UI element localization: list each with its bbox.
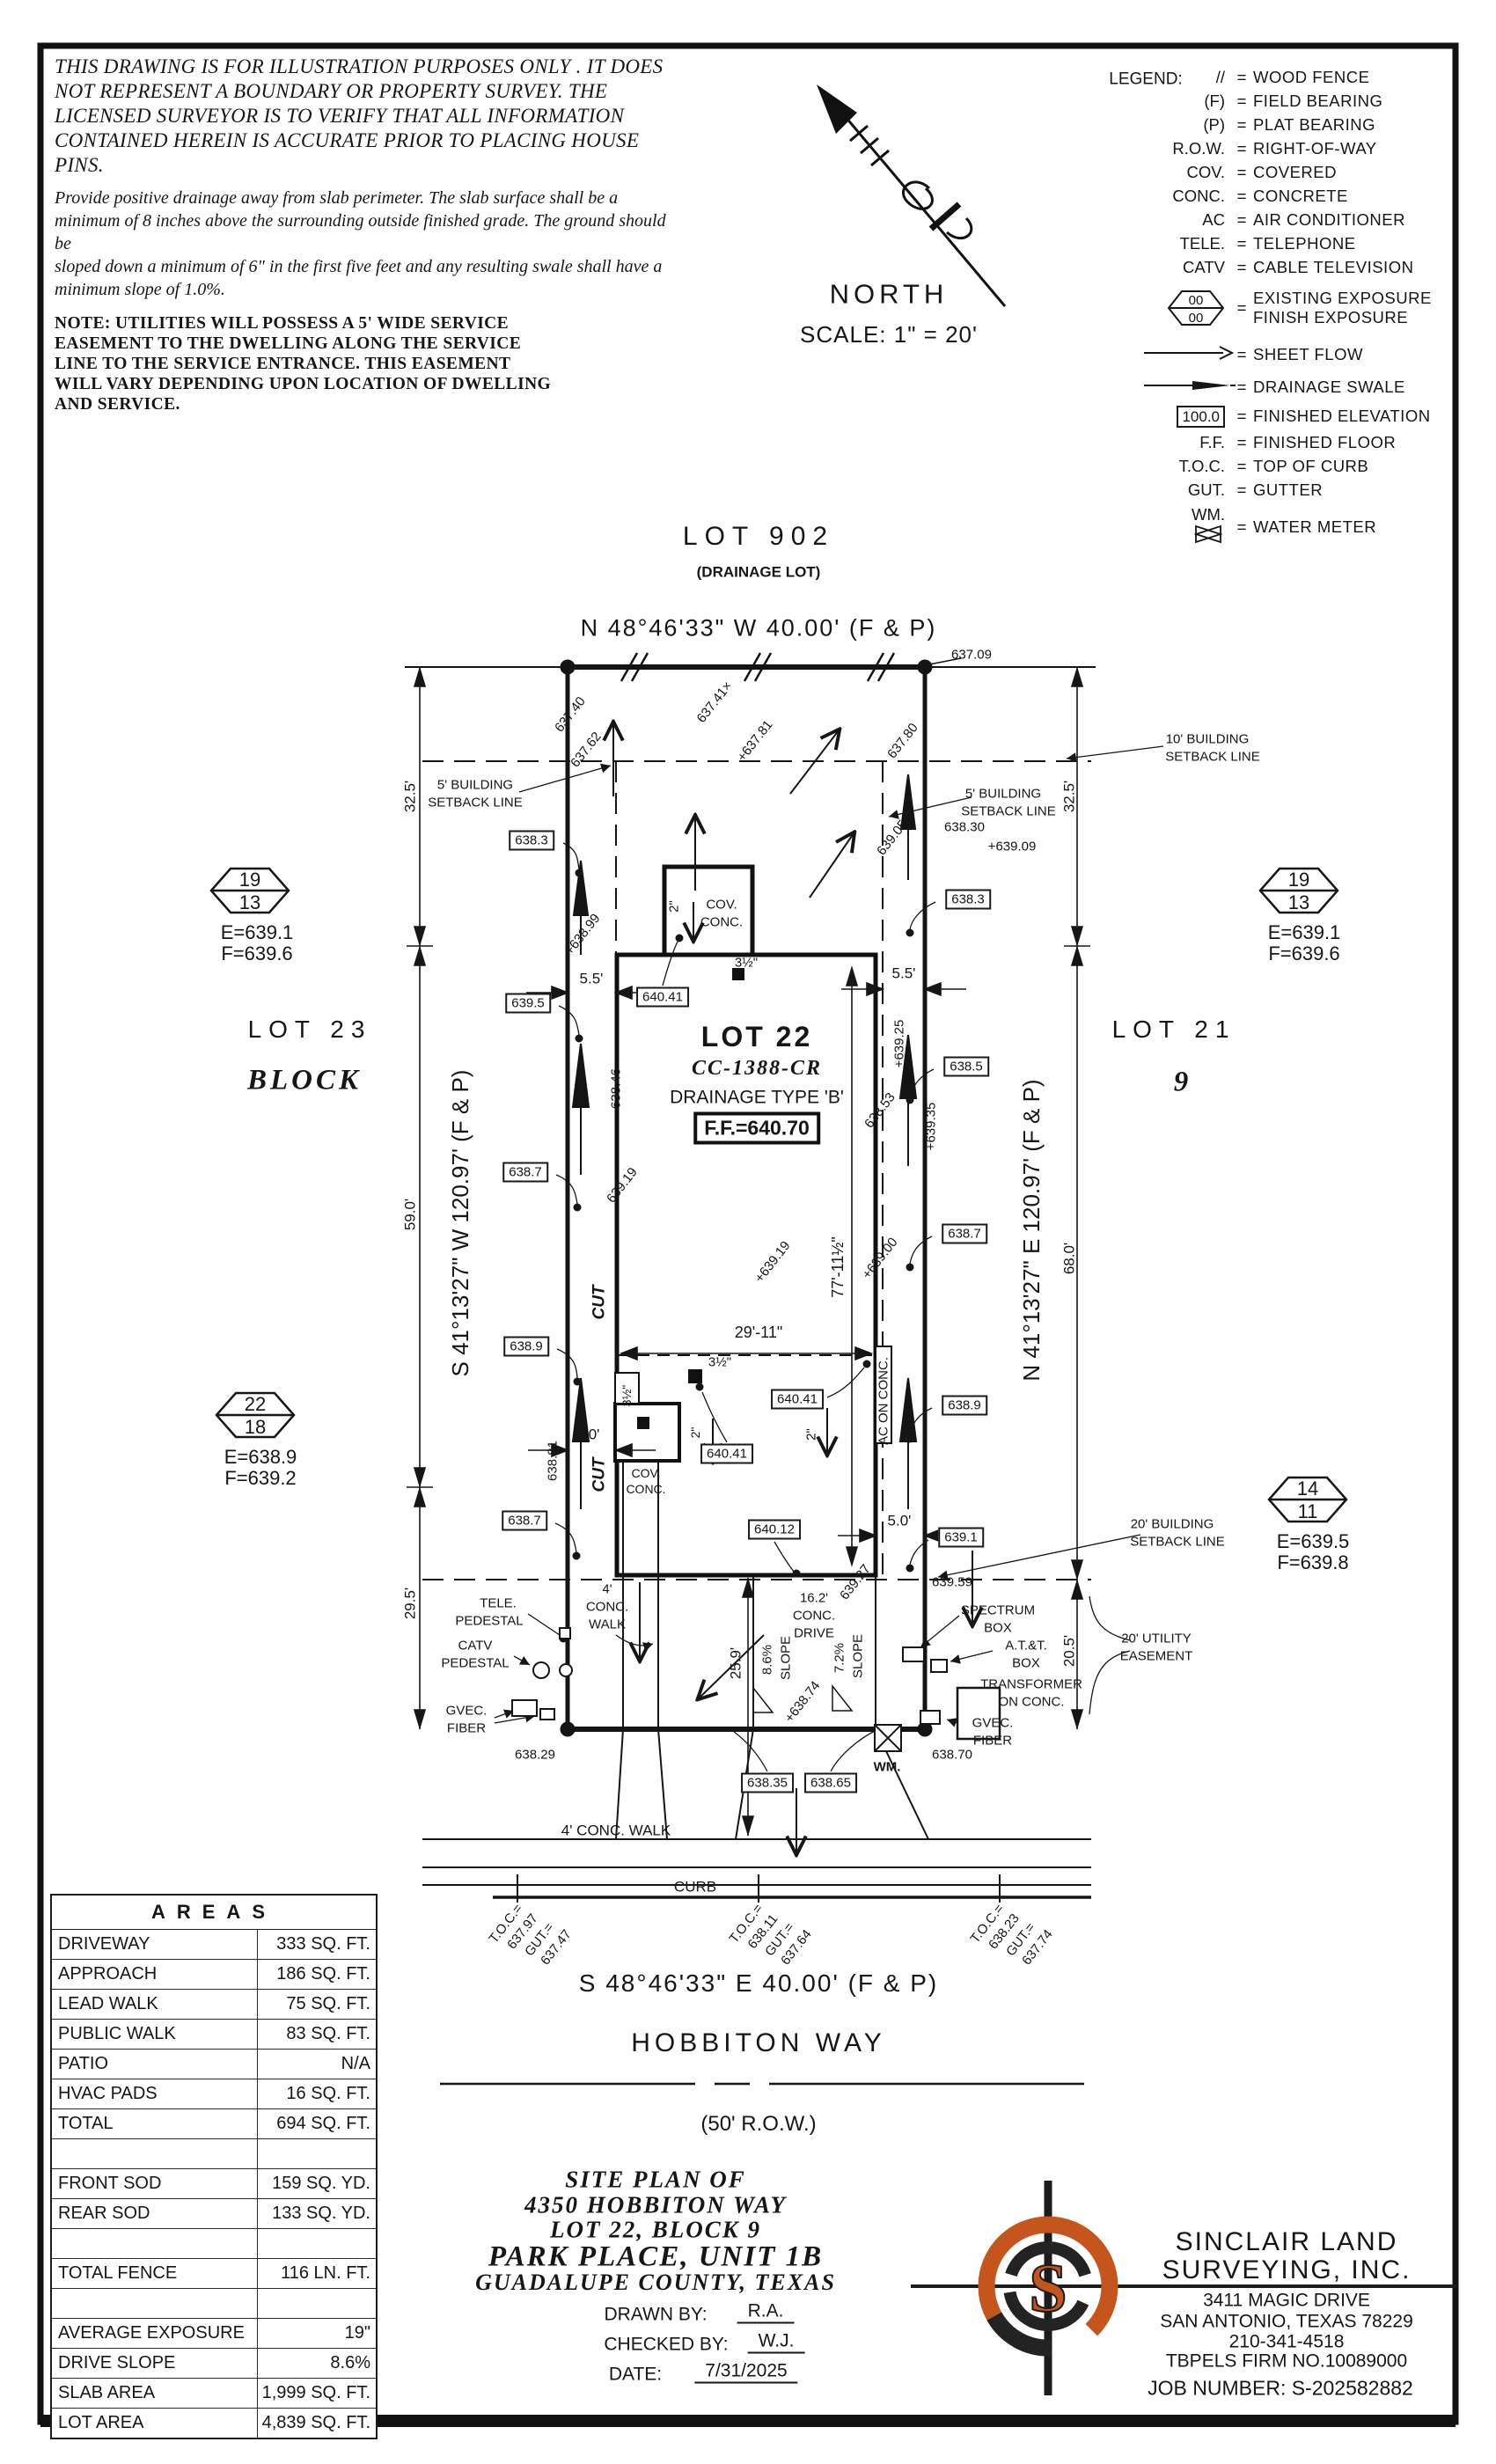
legend-item: =DRAINAGE SWALE [1144,372,1457,402]
legend-item: TELE.=TELEPHONE [1144,231,1457,255]
elev-box-640-41a: 640.41 [636,987,689,1008]
elev-638-29: 638.29 [515,1749,555,1762]
public-walk: 4' CONC. WALK [561,1823,671,1838]
lot-23: LOT 23 [248,1017,372,1042]
areas-row-value: N/A [257,2050,376,2079]
scale-label: SCALE: 1" = 20' [800,323,978,346]
areas-table-title: AREAS [52,1896,376,1930]
exposure-hex-right-top: 1913 [1258,866,1339,915]
areas-row [52,2139,376,2169]
areas-row: TOTAL FENCE116 LN. FT. [52,2259,376,2289]
legend-item: T.O.C.=TOP OF CURB [1144,454,1457,478]
dim-5-left: 5.0' [576,1427,600,1442]
transformer-2: ON CONC. [999,1696,1065,1709]
curb: CURB [674,1880,716,1895]
setback-10-line2: SETBACK LINE [1165,751,1260,764]
dim-29-5: 29.5' [403,1588,418,1619]
disclaimer-line: LICENSED SURVEYOR IS TO VERIFY THAT ALL … [55,104,671,128]
bearing-south: S 48°46'33" E 40.00' (F & P) [579,1971,938,1996]
areas-row-value: 4,839 SQ. FT. [257,2409,376,2438]
ef-right-top-e: E=639.1 [1268,923,1341,942]
checked-by-label: CHECKED BY: [604,2336,728,2354]
areas-row-label: TOTAL [52,2109,257,2138]
firm-name-1: SINCLAIR LAND [1176,2229,1398,2255]
plat-ref: CC-1388-CR [692,1058,822,1079]
elev-box-r2: 638.5 [943,1057,989,1077]
dim-2in-b: 2" [689,1427,701,1439]
setback-5-left-line2: SETBACK LINE [428,796,523,810]
firm-name-2: SURVEYING, INC. [1162,2257,1412,2284]
water-meter-icon [1194,524,1222,544]
tele-pedestal-1: TELE. [480,1597,517,1610]
cov-conc-top-2: CONC. [700,916,743,929]
legend-item: WM.=WATER METER [1144,502,1457,553]
utility-note-line: WILL VARY DEPENDING UPON LOCATION OF DWE… [55,374,671,394]
att-box-2: BOX [1012,1657,1040,1670]
drawn-by-label: DRAWN BY: [604,2306,707,2324]
spot-639-25: +639.25 [893,1020,906,1068]
slope-86-1: 8.6% [761,1645,774,1675]
ef-left-top-f: F=639.6 [221,944,292,964]
elev-box-l2: 639.5 [505,994,551,1014]
drive-dim-1: 16.2' [800,1592,828,1605]
legend-item: AC=AIR CONDITIONER [1144,208,1457,231]
areas-row-value: 16 SQ. FT. [257,2079,376,2108]
ef-left-top-e: E=639.1 [221,923,294,942]
spot-638-46: 638.46 [610,1068,623,1109]
utility-note-line: EASEMENT TO THE DWELLING ALONG THE SERVI… [55,334,671,354]
areas-row-value: 19" [257,2319,376,2348]
bearing-north: N 48°46'33" W 40.00' (F & P) [581,617,937,641]
gvec-right-1: GVEC. [972,1717,1014,1730]
areas-row-label: APPROACH [52,1960,257,1989]
svg-text:14: 14 [1297,1478,1318,1500]
areas-row-label [52,2289,257,2318]
drainage-note-line: Provide positive drainage away from slab… [55,187,671,209]
areas-row: REAR SOD133 SQ. YD. [52,2199,376,2229]
tele-pedestal-2: PEDESTAL [455,1615,523,1628]
setback-20-1: 20' BUILDING [1131,1518,1214,1531]
drainage-type: DRAINAGE TYPE 'B' [670,1089,844,1107]
ef-left-bottom-f: F=639.2 [224,1469,296,1488]
spot-639-35: +639.35 [925,1103,938,1151]
areas-row: PUBLIC WALK83 SQ. FT. [52,2020,376,2050]
elev-box-r5: 639.1 [938,1528,984,1548]
dim-5half-right: 5.5' [892,966,916,981]
areas-row-value [257,2229,376,2258]
finished-elevation-icon: 100.0 [1177,406,1225,428]
drainage-note-line: minimum slope of 1.0%. [55,278,671,301]
dim-32-5-right: 32.5' [1062,781,1077,812]
job-number: JOB NUMBER: S-202582882 [1148,2379,1413,2399]
elev-637-09: 637.09 [951,649,992,662]
north-arrow-icon [817,84,1005,306]
areas-row-value [257,2289,376,2318]
areas-row-value: 333 SQ. FT. [257,1930,376,1959]
gvec-left-2: FIBER [447,1722,486,1735]
catv-pedestal-1: CATV [458,1639,493,1653]
easement-1: 20' UTILITY [1121,1632,1192,1646]
cov-conc-bot-2: CONC. [626,1483,665,1495]
firm-phone: 210-341-4518 [1229,2333,1345,2351]
areas-row: APPROACH186 SQ. FT. [52,1960,376,1990]
elev-box-l5: 638.7 [502,1511,547,1531]
date-value: 7/31/2025 [694,2362,797,2384]
areas-row-label: LEAD WALK [52,1990,257,2019]
site-plan-sheet: S THIS DRAWING IS FOR ILLUSTRATION PURPO… [0,0,1496,2464]
utility-note-line: LINE TO THE SERVICE ENTRANCE. THIS EASEM… [55,354,671,374]
areas-row-value: 8.6% [257,2349,376,2378]
drainage-note-line: sloped down a minimum of 6" in the first… [55,255,671,278]
cut-1: CUT [591,1285,608,1319]
legend-item: R.O.W.=RIGHT-OF-WAY [1144,136,1457,160]
areas-row: LEAD WALK75 SQ. FT. [52,1990,376,2020]
dim-25-9: 25.9' [729,1647,744,1679]
utility-note-line: AND SERVICE. [55,394,671,414]
elev-box-l3: 638.7 [502,1162,548,1183]
legend-item: COV.=COVERED [1144,160,1457,184]
bearing-east: N 41°13'27" E 120.97' (F & P) [1020,1079,1043,1381]
areas-row-label: HVAC PADS [52,2079,257,2108]
cov-conc-top-1: COV. [706,898,737,912]
lead-walk-2: CONC. [586,1601,628,1614]
dim-5half-left: 5.5' [580,972,604,986]
exposure-hex-left-top: 1913 [209,866,290,915]
areas-row-label: DRIVEWAY [52,1930,257,1959]
areas-row-label: PUBLIC WALK [52,2020,257,2049]
areas-row [52,2289,376,2319]
utility-note-line: NOTE: UTILITIES WILL POSSESS A 5' WIDE S… [55,313,671,334]
slope-86-2: SLOPE [780,1636,793,1680]
spectrum-box-1: SPECTRUM [961,1604,1035,1617]
svg-text:11: 11 [1298,1500,1318,1522]
elev-638-30: 638.30 [944,821,985,834]
ef-right-bottom-e: E=639.5 [1277,1532,1350,1551]
areas-row-label: LOT AREA [52,2409,257,2438]
legend-item: CATV=CABLE TELEVISION [1144,255,1457,279]
logo-letter: S [1029,2249,1067,2326]
legend-item: =SHEET FLOW [1144,337,1457,372]
elev-box-r1: 638.3 [945,890,991,910]
easement-2: EASEMENT [1120,1650,1193,1663]
elev-box-640-41b: 640.41 [700,1444,753,1464]
areas-row-value: 186 SQ. FT. [257,1960,376,1989]
areas-table: AREAS DRIVEWAY333 SQ. FT.APPROACH186 SQ.… [50,1894,378,2439]
drawn-by-value: R.A. [737,2302,795,2324]
wm-label: WM. [874,1761,901,1774]
areas-row-label: DRIVE SLOPE [52,2349,257,2378]
elev-box-638-65: 638.65 [804,1773,857,1793]
drainage-swale-icon [1144,378,1236,392]
slope-72-1: 7.2% [833,1643,847,1673]
areas-row-value: 133 SQ. YD. [257,2199,376,2228]
sheet-flow-icon [1144,345,1236,361]
ef-left-bottom-e: E=638.9 [224,1448,297,1467]
block-label: BLOCK [247,1067,362,1096]
setback-10-line1: 10' BUILDING [1166,733,1250,746]
spot-638-81: 638.81 [546,1441,560,1481]
lot-902: LOT 902 [683,524,834,550]
legend-item: GUT.=GUTTER [1144,478,1457,502]
drainage-note-text: Provide positive drainage away from slab… [55,187,671,301]
catv-pedestal-2: PEDESTAL [441,1657,509,1670]
areas-row-label: FRONT SOD [52,2169,257,2198]
checked-by-value: W.J. [748,2332,805,2354]
title-line-3: LOT 22, BLOCK 9 [550,2218,761,2242]
areas-row-label: AVERAGE EXPOSURE [52,2319,257,2348]
svg-text:19: 19 [239,869,260,891]
setback-5-left-line1: 5' BUILDING [437,779,513,792]
elev-638-70: 638.70 [932,1749,972,1762]
elev-box-640-41c: 640.41 [771,1390,824,1410]
elev-box-l4: 638.9 [503,1337,549,1357]
dim-3half-b: 3½" [708,1356,731,1369]
dim-2in-c: 2" [805,1428,818,1441]
ef-right-bottom-f: F=639.8 [1277,1553,1348,1573]
disclaimer-line: NOT REPRESENT A BOUNDARY OR PROPERTY SUR… [55,79,671,104]
slope-72-2: SLOPE [852,1634,865,1678]
elev-639-59: 639.59 [932,1576,972,1589]
disclaimer-text: THIS DRAWING IS FOR ILLUSTRATION PURPOSE… [55,55,671,178]
svg-text:18: 18 [245,1416,266,1438]
elev-box-640-12: 640.12 [748,1520,801,1540]
svg-text:19: 19 [1288,869,1309,891]
svg-text:13: 13 [1288,891,1309,913]
lot-22: LOT 22 [701,1023,812,1051]
areas-row-value: 116 LN. FT. [257,2259,376,2288]
gvec-left-1: GVEC. [446,1705,488,1718]
disclaimer-line: THIS DRAWING IS FOR ILLUSTRATION PURPOSE… [55,55,671,79]
lead-walk-3: WALK [589,1618,626,1632]
legend-item: 0000=EXISTING EXPOSUREFINISH EXPOSURE [1144,279,1457,337]
setback-5-right-line2: SETBACK LINE [961,805,1056,818]
areas-row: DRIVE SLOPE8.6% [52,2349,376,2379]
lot-21: LOT 21 [1112,1017,1236,1042]
street-name: HOBBITON WAY [631,2030,885,2057]
finished-floor-box: F.F.=640.70 [693,1112,820,1145]
drainage-note-line: minimum of 8 inches above the surroundin… [55,209,671,255]
svg-text:13: 13 [239,891,260,913]
dim-32-5-left: 32.5' [403,781,418,812]
areas-row-value: 159 SQ. YD. [257,2169,376,2198]
areas-row: TOTAL694 SQ. FT. [52,2109,376,2139]
areas-row [52,2229,376,2259]
setback-5-right-line1: 5' BUILDING [965,788,1041,801]
areas-row-value: 694 SQ. FT. [257,2109,376,2138]
att-box-1: A.T.&T. [1005,1639,1047,1653]
legend-item: (F)=FIELD BEARING [1144,89,1457,113]
legend-item: //=WOOD FENCE [1144,65,1457,89]
areas-row-value [257,2139,376,2168]
title-line-1: SITE PLAN OF [565,2168,746,2192]
svg-text:00: 00 [1189,311,1204,326]
gvec-right-2: FIBER [973,1734,1012,1748]
date-label: DATE: [609,2365,662,2384]
exposure-hex-right-bottom: 1411 [1267,1475,1348,1524]
firm-license: TBPELS FIRM NO.10089000 [1166,2352,1407,2371]
disclaimer-line: CONTAINED HEREIN IS ACCURATE PRIOR TO PL… [55,128,671,178]
dim-3half-c: 3½" [620,1385,633,1406]
dim-5-right: 5.0' [888,1514,912,1529]
areas-row-label [52,2139,257,2168]
block-9: 9 [1174,1068,1189,1097]
areas-row-value: 75 SQ. FT. [257,1990,376,2019]
areas-row-value: 83 SQ. FT. [257,2020,376,2049]
areas-row: AVERAGE EXPOSURE19" [52,2319,376,2349]
setback-20-2: SETBACK LINE [1130,1536,1225,1549]
elev-box-638-35: 638.35 [741,1773,794,1793]
firm-address-1: 3411 MAGIC DRIVE [1203,2292,1370,2310]
title-line-2: 4350 HOBBITON WAY [524,2194,787,2218]
areas-row: DRIVEWAY333 SQ. FT. [52,1930,376,1960]
dim-20-5: 20.5' [1062,1635,1077,1667]
areas-row-label: SLAB AREA [52,2379,257,2408]
legend-item: (P)=PLAT BEARING [1144,113,1457,136]
cov-conc-bot-1: COV. [632,1467,661,1479]
dim-77-11: 77'-11½" [830,1236,846,1298]
north-label: NORTH [830,281,949,308]
bearing-west: S 41°13'27" W 120.97' (F & P) [449,1070,472,1377]
drainage-lot: (DRAINAGE LOT) [697,565,821,580]
legend-item: F.F.=FINISHED FLOOR [1144,430,1457,454]
legend-item: CONC.=CONCRETE [1144,184,1457,208]
dim-29-11: 29'-11" [735,1324,783,1340]
areas-row-label: TOTAL FENCE [52,2259,257,2288]
areas-row: SLAB AREA1,999 SQ. FT. [52,2379,376,2409]
title-line-5: GUADALUPE COUNTY, TEXAS [475,2271,836,2294]
notes-block: THIS DRAWING IS FOR ILLUSTRATION PURPOSE… [55,55,671,414]
exposure-hex-left-bottom: 2218 [215,1390,296,1440]
ac-on-conc: AC ON CONC. [877,1357,891,1445]
elev-639-09: +639.09 [988,840,1037,854]
areas-row: PATION/A [52,2050,376,2079]
dim-59-0: 59.0' [403,1199,418,1230]
cut-2: CUT [591,1457,608,1492]
drive-dim-3: DRIVE [794,1627,834,1640]
svg-text:22: 22 [245,1393,266,1415]
areas-row: HVAC PADS16 SQ. FT. [52,2079,376,2109]
elev-box-r3: 638.7 [942,1224,987,1244]
utility-easement-note-text: NOTE: UTILITIES WILL POSSESS A 5' WIDE S… [55,313,671,414]
areas-row-value: 1,999 SQ. FT. [257,2379,376,2408]
spectrum-box-2: BOX [984,1622,1012,1635]
ef-right-top-f: F=639.6 [1268,944,1339,964]
areas-row-label: REAR SOD [52,2199,257,2228]
svg-text:00: 00 [1189,293,1204,308]
legend: //=WOOD FENCE(F)=FIELD BEARING(P)=PLAT B… [1144,65,1457,553]
areas-row-label: PATIO [52,2050,257,2079]
dim-2in-a: 2" [668,900,681,913]
dim-68-0: 68.0' [1062,1243,1077,1274]
drive-dim-2: CONC. [793,1610,835,1623]
elev-box-l1: 638.3 [509,831,554,851]
row-width: (50' R.O.W.) [700,2114,816,2135]
transformer-1: TRANSFORMER [980,1678,1082,1691]
elev-box-r4: 638.9 [942,1396,987,1416]
areas-row-label [52,2229,257,2258]
lead-walk-1: 4' [602,1583,612,1596]
title-line-4: PARK PLACE, UNIT 1B [488,2243,823,2272]
areas-row: FRONT SOD159 SQ. YD. [52,2169,376,2199]
firm-address-2: SAN ANTONIO, TEXAS 78229 [1160,2313,1413,2331]
areas-row: LOT AREA4,839 SQ. FT. [52,2409,376,2438]
dim-3half-a: 3½" [735,957,758,970]
exposure-hex-icon: 0000 [1167,290,1225,326]
legend-item: 100.0=FINISHED ELEVATION [1144,402,1457,430]
